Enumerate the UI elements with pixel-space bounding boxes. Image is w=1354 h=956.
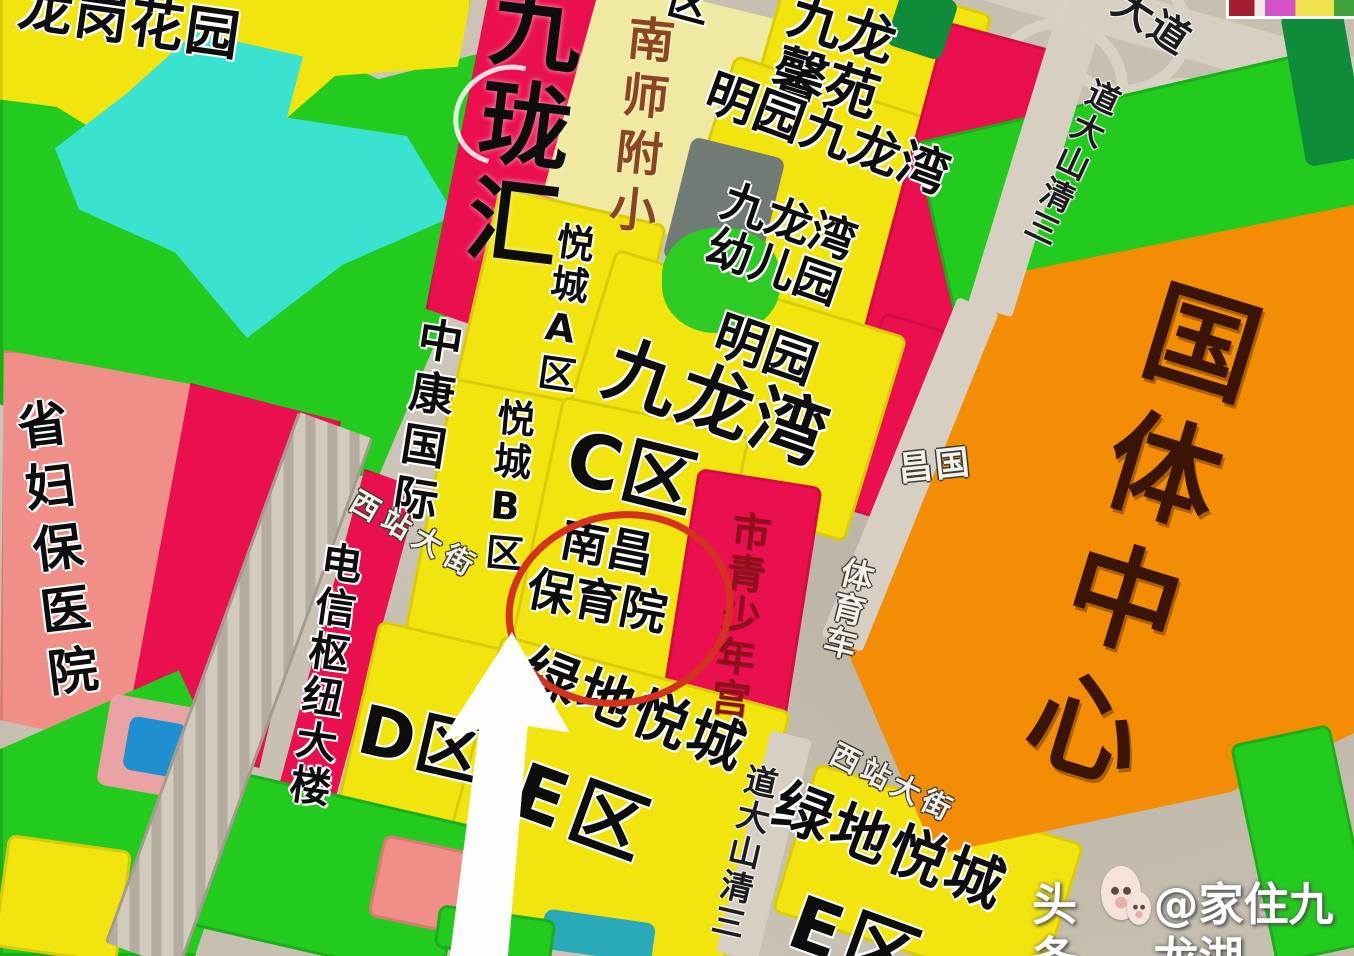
map-canvas: 龙岗花园 九珑汇 区 南师附小 悦城A区 悦城B区 中康国际 电信枢纽大楼 省妇… <box>0 0 1354 956</box>
face-emoji-icon <box>1127 892 1152 925</box>
watermark-prefix: 头条 <box>1032 878 1099 956</box>
road-label-changguo: 昌国 <box>896 434 975 490</box>
inset-map <box>1226 0 1354 19</box>
watermark: 头条 @家住九龙湖 <box>1032 878 1354 956</box>
watermark-handle: @家住九龙湖 <box>1153 878 1354 956</box>
